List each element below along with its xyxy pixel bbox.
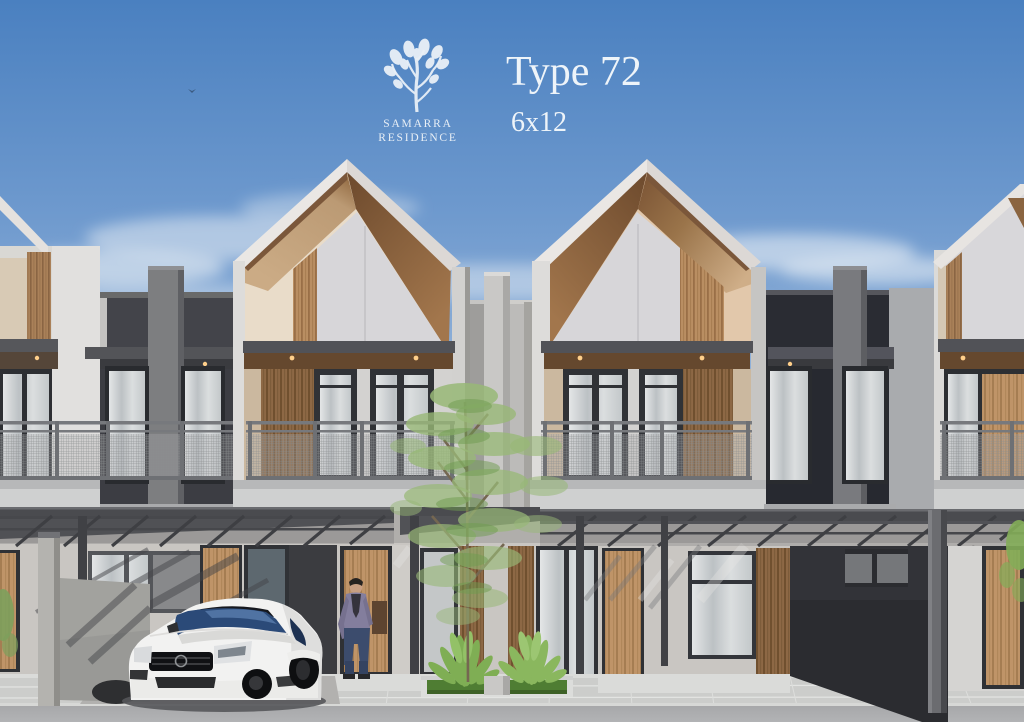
svg-text:6x12: 6x12 — [511, 107, 567, 138]
svg-text:Type 72: Type 72 — [506, 49, 642, 95]
svg-text:RESIDENCE: RESIDENCE — [378, 132, 457, 144]
svg-text:SAMARRA: SAMARRA — [383, 118, 452, 130]
